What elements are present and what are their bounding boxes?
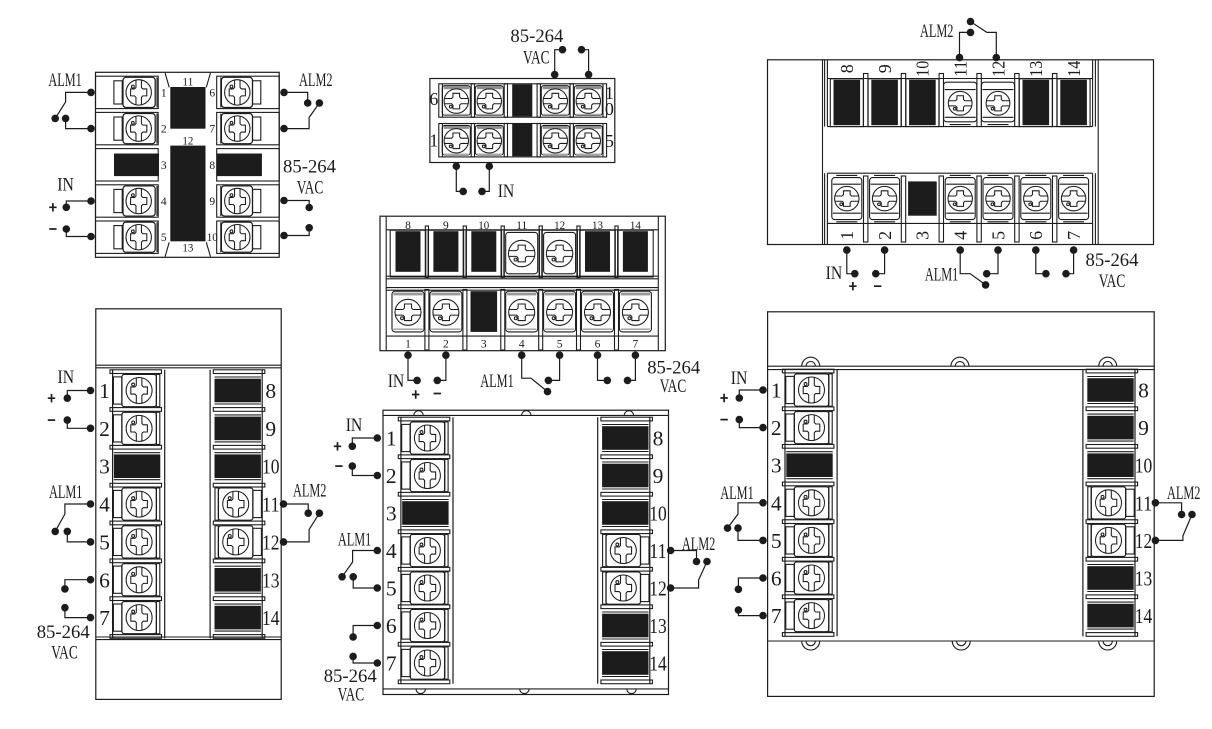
svg-text:11: 11 [951, 61, 971, 77]
svg-text:9: 9 [1138, 416, 1149, 440]
svg-text:IN: IN [57, 175, 74, 196]
svg-text:4: 4 [161, 196, 167, 208]
svg-text:12: 12 [182, 135, 193, 147]
svg-text:7: 7 [386, 652, 397, 676]
svg-text:6: 6 [771, 567, 782, 591]
svg-text:1: 1 [386, 427, 397, 451]
svg-text:6: 6 [595, 338, 601, 350]
svg-text:6: 6 [386, 614, 397, 638]
svg-text:5: 5 [557, 338, 563, 350]
svg-text:IN: IN [731, 368, 748, 389]
svg-text:7: 7 [1064, 231, 1084, 240]
svg-text:VAC: VAC [51, 643, 78, 664]
svg-text:2: 2 [99, 417, 110, 441]
svg-text:1: 1 [405, 338, 411, 350]
svg-text:85-264: 85-264 [283, 157, 336, 178]
svg-text:8: 8 [837, 64, 857, 73]
svg-text:ALM2: ALM2 [293, 481, 327, 502]
svg-text:VAC: VAC [297, 178, 324, 199]
svg-text:ALM2: ALM2 [1167, 483, 1201, 504]
svg-text:7: 7 [99, 606, 110, 630]
svg-text:ALM2: ALM2 [299, 70, 333, 91]
svg-text:ALM1: ALM1 [925, 265, 959, 286]
svg-text:ALM2: ALM2 [682, 534, 716, 555]
svg-text:3: 3 [913, 231, 933, 240]
svg-text:9: 9 [653, 464, 664, 488]
svg-text:IN: IN [58, 367, 75, 388]
svg-text:10: 10 [649, 502, 667, 526]
svg-text:IN: IN [498, 181, 515, 202]
svg-text:8: 8 [653, 427, 664, 451]
svg-text:ALM1: ALM1 [720, 483, 754, 504]
svg-text:4: 4 [771, 491, 782, 515]
svg-text:13: 13 [262, 568, 280, 592]
svg-text:0: 0 [605, 99, 614, 119]
svg-text:5: 5 [988, 231, 1008, 240]
svg-text:85-264: 85-264 [510, 26, 563, 47]
svg-text:8: 8 [1138, 379, 1149, 403]
svg-text:6: 6 [209, 87, 215, 99]
svg-text:2: 2 [875, 231, 895, 240]
svg-text:3: 3 [386, 502, 397, 526]
svg-text:85-264: 85-264 [37, 622, 90, 643]
svg-text:9: 9 [875, 64, 895, 73]
svg-text:5: 5 [161, 232, 167, 244]
svg-text:7: 7 [771, 604, 782, 628]
svg-text:6: 6 [429, 89, 438, 109]
svg-text:8: 8 [265, 379, 276, 403]
svg-text:1: 1 [771, 379, 782, 403]
svg-text:6: 6 [1026, 231, 1046, 240]
svg-text:13: 13 [182, 243, 193, 255]
svg-text:14: 14 [1064, 61, 1084, 77]
svg-text:ALM1: ALM1 [49, 482, 83, 503]
svg-text:IN: IN [826, 263, 843, 284]
svg-text:10: 10 [262, 455, 280, 479]
svg-text:9: 9 [209, 196, 215, 208]
svg-text:2: 2 [161, 124, 167, 136]
svg-text:11: 11 [649, 539, 667, 563]
svg-text:10: 10 [1135, 454, 1153, 478]
svg-text:1: 1 [161, 87, 167, 99]
svg-text:VAC: VAC [523, 47, 550, 68]
svg-text:5: 5 [386, 577, 397, 601]
svg-text:VAC: VAC [660, 376, 687, 397]
svg-text:4: 4 [386, 539, 397, 563]
svg-text:11: 11 [262, 493, 280, 517]
svg-text:4: 4 [519, 338, 525, 350]
svg-text:1: 1 [429, 131, 438, 151]
svg-text:14: 14 [1135, 604, 1153, 628]
svg-text:ALM2: ALM2 [920, 21, 954, 42]
svg-text:2: 2 [771, 416, 782, 440]
svg-text:14: 14 [649, 652, 667, 676]
svg-text:12: 12 [262, 530, 280, 554]
svg-text:5: 5 [605, 131, 614, 151]
svg-text:4: 4 [951, 231, 971, 240]
svg-text:3: 3 [771, 454, 782, 478]
svg-text:13: 13 [1026, 61, 1046, 77]
svg-text:7: 7 [209, 124, 215, 136]
svg-text:IN: IN [346, 415, 363, 436]
svg-text:12: 12 [649, 577, 667, 601]
svg-text:12: 12 [988, 61, 1008, 77]
svg-text:1: 1 [837, 231, 857, 240]
svg-text:VAC: VAC [338, 685, 365, 706]
svg-text:10: 10 [913, 61, 933, 77]
svg-text:4: 4 [99, 493, 110, 517]
svg-text:7: 7 [633, 338, 639, 350]
svg-text:5: 5 [99, 530, 110, 554]
svg-text:5: 5 [771, 529, 782, 553]
svg-text:ALM1: ALM1 [48, 70, 82, 91]
svg-text:9: 9 [265, 417, 276, 441]
svg-text:2: 2 [443, 338, 449, 350]
svg-text:3: 3 [99, 455, 110, 479]
svg-text:13: 13 [1135, 567, 1153, 591]
svg-text:11: 11 [182, 77, 193, 89]
svg-text:11: 11 [1135, 491, 1153, 515]
svg-text:8: 8 [209, 160, 215, 172]
svg-text:ALM1: ALM1 [338, 529, 372, 550]
svg-text:85-264: 85-264 [1086, 250, 1139, 271]
svg-text:2: 2 [386, 464, 397, 488]
svg-text:14: 14 [262, 606, 280, 630]
svg-text:IN: IN [388, 371, 405, 392]
svg-text:3: 3 [161, 160, 167, 172]
svg-text:6: 6 [99, 568, 110, 592]
svg-text:1: 1 [99, 379, 110, 403]
svg-text:10: 10 [207, 232, 218, 244]
svg-text:12: 12 [1135, 529, 1153, 553]
svg-text:3: 3 [481, 338, 487, 350]
svg-text:ALM1: ALM1 [480, 371, 514, 392]
svg-text:VAC: VAC [1099, 271, 1126, 292]
svg-text:13: 13 [649, 614, 667, 638]
